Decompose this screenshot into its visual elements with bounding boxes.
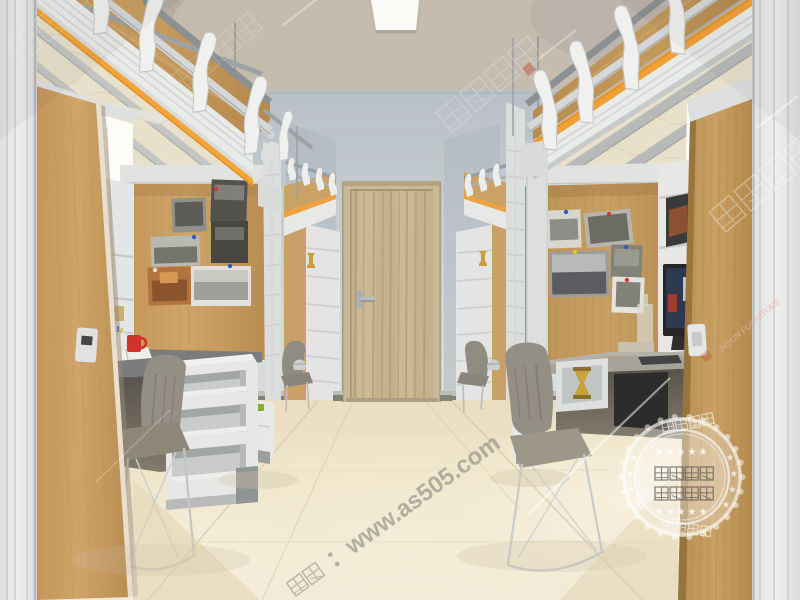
svg-text:★: ★ — [722, 500, 730, 510]
svg-text:★★★★★: ★★★★★ — [655, 447, 710, 458]
svg-text:★: ★ — [730, 468, 738, 478]
svg-text:★: ★ — [726, 453, 734, 463]
svg-text:★: ★ — [630, 453, 638, 463]
svg-text:★: ★ — [627, 485, 635, 495]
svg-text:★★★★★: ★★★★★ — [655, 507, 710, 518]
svg-text:★: ★ — [626, 468, 634, 478]
svg-text:★: ★ — [634, 500, 642, 510]
svg-text:★: ★ — [728, 485, 736, 495]
